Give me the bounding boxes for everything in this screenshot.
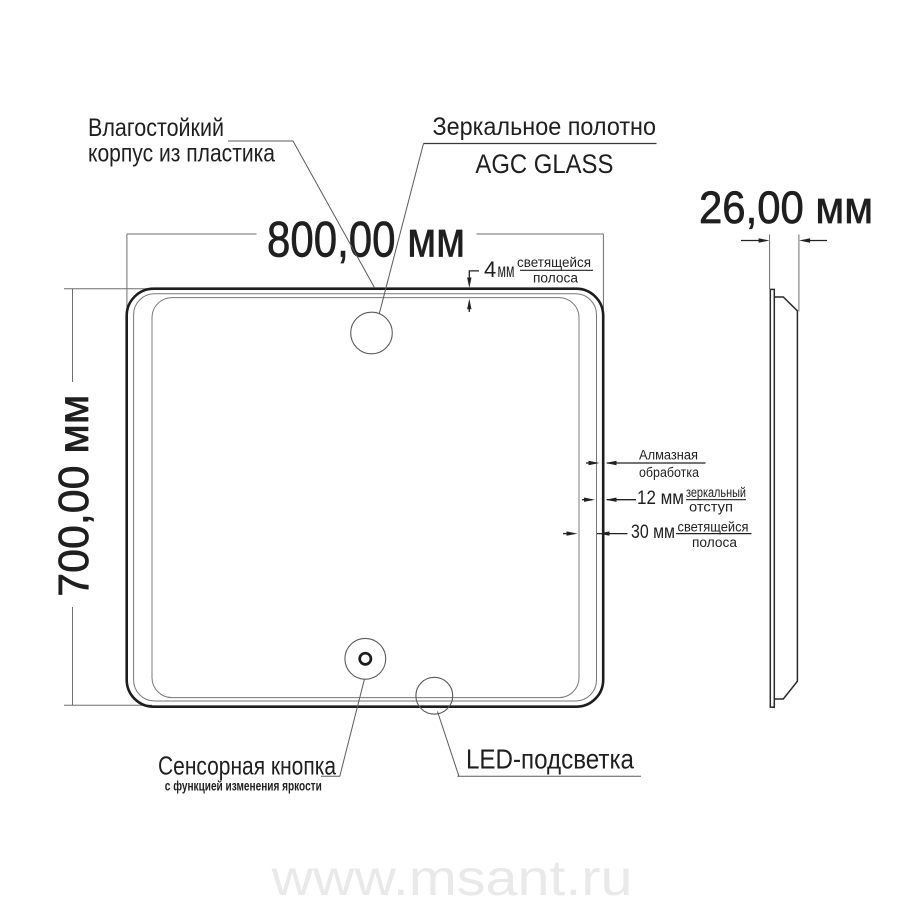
svg-text:LED-подсветка: LED-подсветка xyxy=(466,744,634,775)
svg-text:обработка: обработка xyxy=(639,465,699,480)
svg-text:4: 4 xyxy=(484,257,496,282)
svg-text:отступ: отступ xyxy=(689,500,733,515)
svg-text:700,00 мм: 700,00 мм xyxy=(50,395,98,597)
svg-text:Влагостойкий: Влагостойкий xyxy=(88,114,224,142)
svg-text:12 мм: 12 мм xyxy=(637,488,684,509)
svg-text:с функцией изменения яркости: с функцией изменения яркости xyxy=(165,779,322,794)
svg-text:светящейся: светящейся xyxy=(517,255,591,270)
svg-text:корпус из пластика: корпус из пластика xyxy=(88,140,275,168)
svg-text:полоса: полоса xyxy=(533,271,578,286)
svg-text:Алмазная: Алмазная xyxy=(639,447,698,462)
svg-text:Сенсорная кнопка: Сенсорная кнопка xyxy=(158,751,336,781)
svg-text:полоса: полоса xyxy=(692,535,737,550)
svg-text:зеркальный: зеркальный xyxy=(686,485,746,500)
svg-text:30 мм: 30 мм xyxy=(631,522,675,543)
svg-text:AGC GLASS: AGC GLASS xyxy=(475,149,613,179)
svg-text:800,00 мм: 800,00 мм xyxy=(267,212,465,268)
svg-text:26,00 мм: 26,00 мм xyxy=(699,182,873,233)
svg-text:Зеркальное полотно: Зеркальное полотно xyxy=(433,113,657,141)
svg-text:www.msant.ru: www.msant.ru xyxy=(270,850,632,900)
svg-text:мм: мм xyxy=(498,261,515,282)
svg-text:светящейся: светящейся xyxy=(678,520,749,535)
